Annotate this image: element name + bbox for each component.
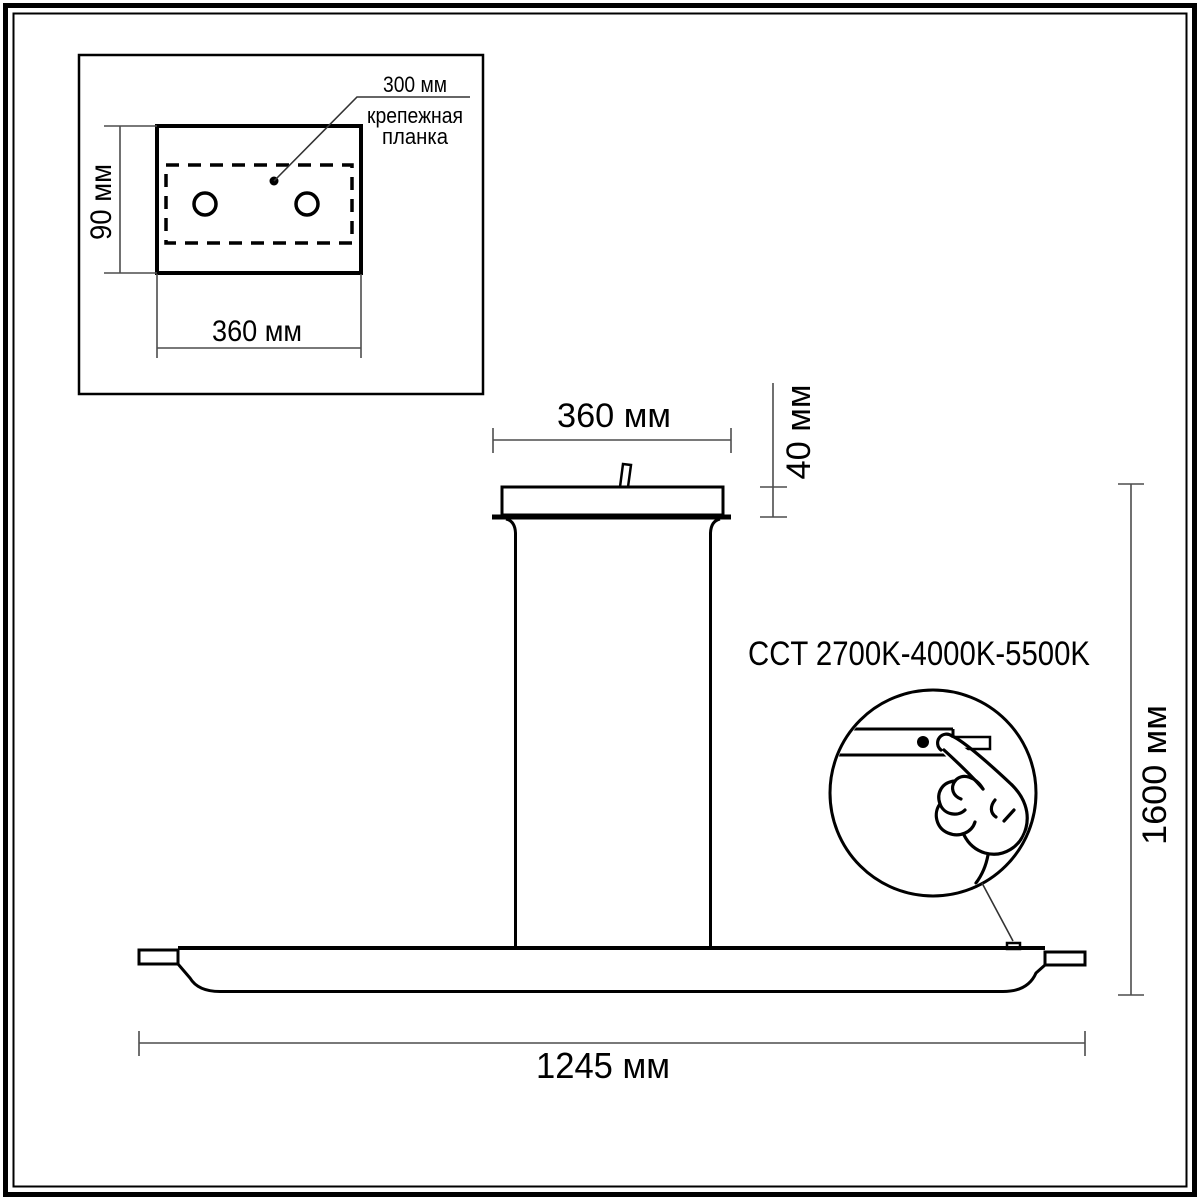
cct-detail-circle bbox=[820, 690, 1042, 941]
bar-offset-label: 300 мм bbox=[383, 72, 447, 97]
fixture-tab-right bbox=[1045, 952, 1085, 965]
canopy bbox=[502, 487, 723, 515]
fixture-body bbox=[139, 943, 1085, 992]
bar-name-line2: планка bbox=[382, 124, 449, 149]
canopy-width-label: 360 мм bbox=[557, 397, 671, 435]
plate-width-label: 360 мм bbox=[212, 315, 302, 348]
fixture-tab-left bbox=[139, 950, 178, 964]
plate-height-label: 90 мм bbox=[85, 164, 118, 240]
mounting-plate-inset: 300 мм крепежная планка 90 мм 360 мм bbox=[79, 55, 483, 394]
stem bbox=[506, 519, 720, 948]
fixture-diffuser-outline bbox=[178, 964, 1045, 992]
fixture-length-label: 1245 мм bbox=[536, 1045, 670, 1086]
pendant-light-dimension-drawing: 300 мм крепежная планка 90 мм 360 мм 360… bbox=[0, 0, 1200, 1200]
overall-height-label: 1600 мм bbox=[1136, 705, 1174, 845]
canopy-height-label: 40 мм bbox=[780, 385, 818, 480]
detail-cct-button bbox=[917, 736, 929, 748]
cct-label: CCT 2700K-4000K-5500K bbox=[748, 635, 1090, 673]
canopy-pin bbox=[620, 464, 631, 487]
detail-leader-line bbox=[982, 883, 1013, 941]
drawing-canvas: 300 мм крепежная планка 90 мм 360 мм 360… bbox=[0, 0, 1200, 1200]
